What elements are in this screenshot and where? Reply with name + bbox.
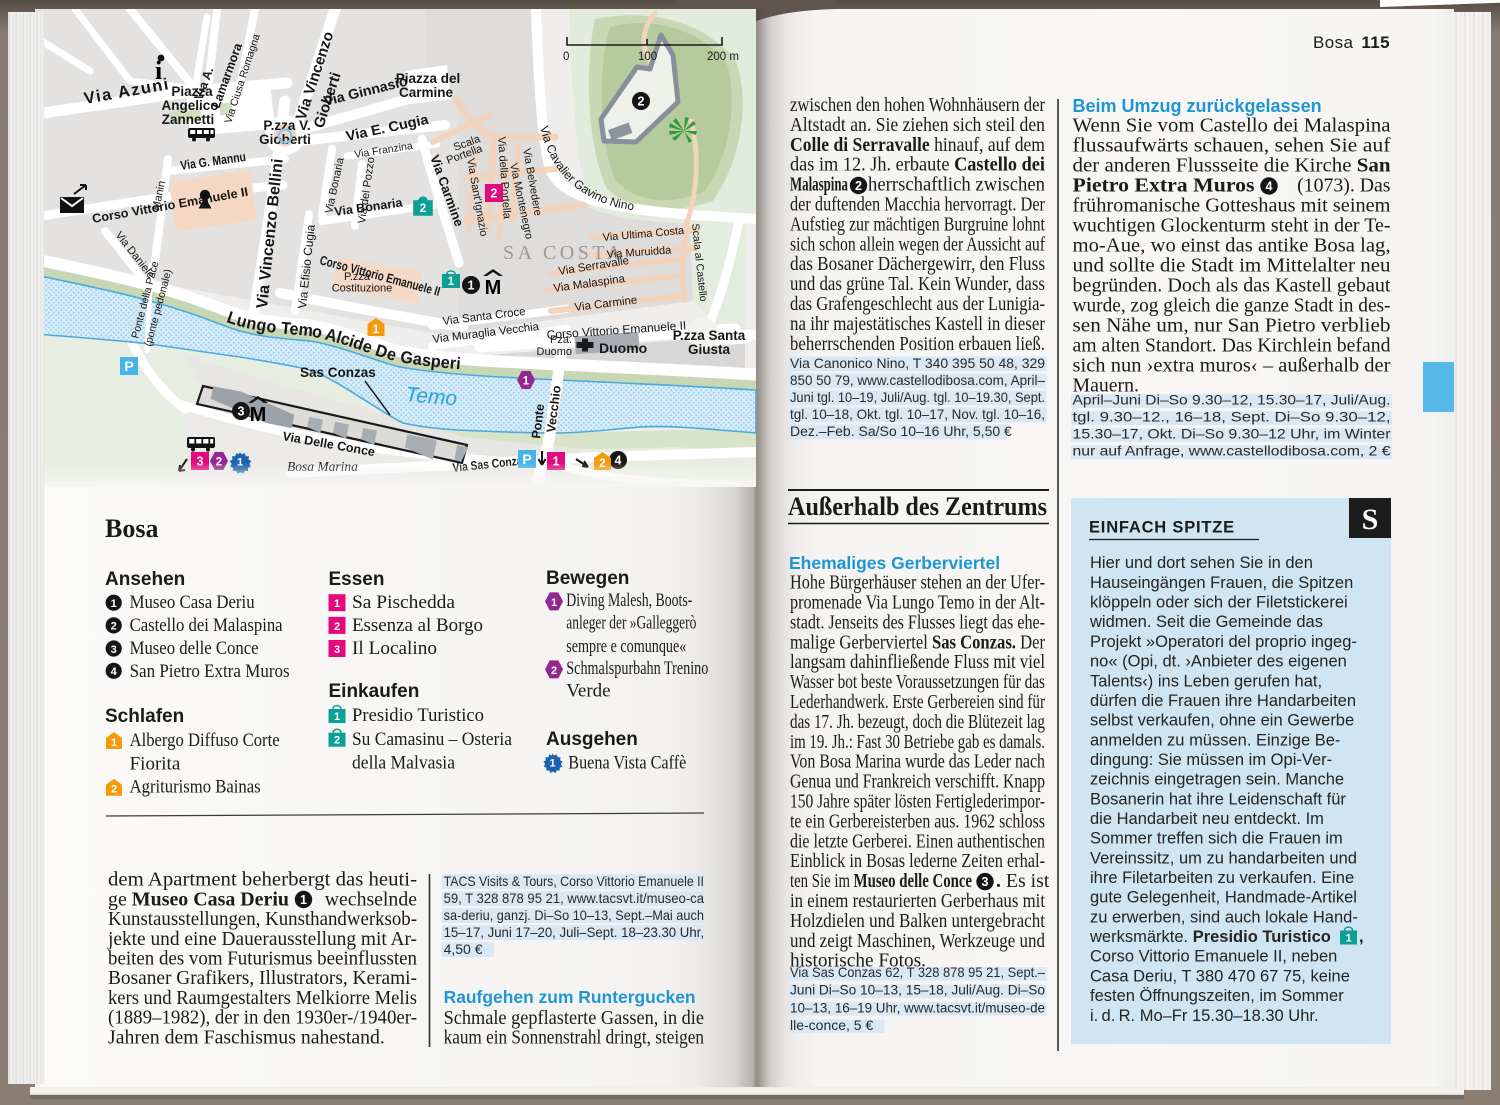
- svg-text:Vereinssitz, um zu handarbeite: Vereinssitz, um zu handarbeiten und: [1090, 849, 1357, 867]
- svg-text:Außerhalb des Zentrums: Außerhalb des Zentrums: [788, 491, 1047, 521]
- svg-text:1: 1: [1345, 933, 1351, 945]
- svg-text:dürfen die Frauen ihre Handarb: dürfen die Frauen ihre Handarbeiten: [1090, 692, 1356, 710]
- svg-text:Essen: Essen: [329, 569, 385, 590]
- svg-text:werksmärkte. Presidio Turistic: werksmärkte. Presidio Turistico: [1089, 928, 1331, 946]
- svg-text:ge Museo Casa Deriu: ge Museo Casa Deriu: [108, 888, 289, 910]
- svg-text:1: 1: [334, 598, 340, 610]
- svg-text:wurde, zog gleich die ganze St: wurde, zog gleich die ganze Stadt in des…: [1073, 295, 1391, 317]
- svg-text:flussaufwärts schauen, sehen S: flussaufwärts schauen, sehen Sie auf: [1073, 135, 1391, 157]
- svg-text:Aufstieg zur mächtigen Burgrui: Aufstieg zur mächtigen Burgruine lohnt: [790, 213, 1045, 235]
- svg-text:2: 2: [420, 203, 426, 215]
- svg-text:jekte und eine Dauerausstellun: jekte und eine Dauerausstellung mit Ar-: [107, 928, 417, 950]
- svg-text:3: 3: [238, 405, 245, 419]
- svg-text:2: 2: [855, 179, 862, 193]
- svg-text:Jahren dem Faschismus nahestan: Jahren dem Faschismus nahestand.: [108, 1026, 385, 1048]
- svg-text:1: 1: [373, 324, 380, 336]
- svg-text:ten Sie im Museo delle Conce: ten Sie im Museo delle Conce: [790, 870, 972, 892]
- svg-text:Dez.–Feb. Sa/So 10–16 Uhr, 5,5: Dez.–Feb. Sa/So 10–16 Uhr, 5,50 €: [790, 423, 1012, 439]
- svg-text:4,50 €: 4,50 €: [444, 941, 483, 957]
- svg-text:Bosa: Bosa: [105, 514, 158, 543]
- svg-text:TACS Visits & Tours, Corso Vit: TACS Visits & Tours, Corso Vittorio Eman…: [444, 873, 704, 889]
- svg-text:1: 1: [334, 711, 340, 723]
- svg-text:Wenn Sie vom Castello dei Mala: Wenn Sie vom Castello dei Malaspina: [1073, 115, 1391, 137]
- svg-text:Einkaufen: Einkaufen: [329, 681, 420, 702]
- svg-text:Essenza al Borgo: Essenza al Borgo: [352, 615, 483, 636]
- svg-text:3: 3: [982, 875, 989, 889]
- svg-text:beiten des vom Futurismus beei: beiten des vom Futurismus beeinflussten: [108, 948, 417, 970]
- svg-text:Museo Casa Deriu: Museo Casa Deriu: [130, 592, 255, 613]
- svg-text:1: 1: [448, 276, 455, 288]
- svg-text:ihre Filetarbeiten zu verkaufe: ihre Filetarbeiten zu verkaufen. Eine: [1090, 869, 1354, 887]
- svg-text:100: 100: [638, 51, 657, 63]
- svg-text:2: 2: [334, 621, 340, 633]
- svg-text:Piazza del: Piazza del: [396, 71, 461, 86]
- svg-text:die Handarbeit neu entdeckt. I: die Handarbeit neu entdeckt. Im: [1090, 810, 1324, 828]
- svg-text:Costituzione: Costituzione: [332, 283, 393, 295]
- svg-text:Bewegen: Bewegen: [546, 568, 629, 589]
- svg-text:Castello dei Malaspina: Castello dei Malaspina: [130, 615, 283, 636]
- svg-text:Juni Di–So 10–13, 15–18, Juli/: Juni Di–So 10–13, 15–18, Juli/Aug. Di–So: [790, 982, 1045, 998]
- svg-text:zu erwerben, sind auch lokale: zu erwerben, sind auch lokale Hand-: [1090, 908, 1358, 926]
- svg-text:Fiorita: Fiorita: [130, 754, 181, 775]
- svg-text:3: 3: [334, 644, 340, 656]
- svg-text:150 Jahre später lösten Fertig: 150 Jahre später lösten Fertiglederimpor…: [790, 791, 1045, 813]
- svg-text:P.zza Santa: P.zza Santa: [673, 328, 746, 343]
- svg-text:tgl. 10–18, Okt. tgl. 10–17, N: tgl. 10–18, Okt. tgl. 10–17, Nov. tgl. 1…: [790, 406, 1045, 422]
- svg-text:M: M: [485, 277, 502, 299]
- svg-text:im 19. Jh.: Fast 30 Betriebe g: im 19. Jh.: Fast 30 Betriebe gab es dama…: [790, 731, 1045, 753]
- svg-text:15–17, Juni 17–20, Juli–Sept.: 15–17, Juni 17–20, Juli–Sept. 18–23.30 U…: [444, 924, 704, 940]
- svg-text:Verde: Verde: [566, 681, 610, 702]
- svg-text:kers und Raumgestalters Melkio: kers und Raumgestalters Melkiorre Melis: [108, 987, 417, 1009]
- svg-text:Zannetti: Zannetti: [162, 112, 215, 127]
- svg-text:der anderen Flussseite die Kir: der anderen Flussseite die Kirche San: [1073, 155, 1391, 177]
- svg-text:Ehemaliges Gerberviertel: Ehemaliges Gerberviertel: [789, 553, 1000, 573]
- svg-text:festen Öffnungszeiten, im Somm: festen Öffnungszeiten, im Sommer: [1090, 987, 1344, 1005]
- svg-text:Carmine: Carmine: [399, 85, 454, 100]
- svg-text:Sommer treffen sich die Frauen: Sommer treffen sich die Frauen im: [1090, 830, 1343, 848]
- svg-text:Einblick in Bosas lederne Zeit: Einblick in Bosas lederne Zeiten erhal-: [790, 850, 1045, 872]
- svg-text:4: 4: [1266, 180, 1273, 194]
- svg-text:Casa Deriu, T 380 470 67 75, k: Casa Deriu, T 380 470 67 75, keine: [1090, 967, 1350, 985]
- svg-text:Colle di Serravalle hinauf, au: Colle di Serravalle hinauf, auf dem: [790, 134, 1046, 156]
- svg-text:Diving Malesh, Boots-: Diving Malesh, Boots-: [566, 590, 692, 611]
- svg-text:Gioberti: Gioberti: [259, 132, 311, 147]
- svg-text:Su Camasinu – Osteria: Su Camasinu – Osteria: [352, 729, 513, 750]
- svg-text:sa-deriu, ganzj. Di–So 10–13,: sa-deriu, ganzj. Di–So 10–13, Sept.–Mai …: [444, 907, 704, 923]
- svg-text:selbst verkaufen, ohne ein Gew: selbst verkaufen, ohne ein Gewerbe: [1090, 712, 1354, 730]
- svg-text:stadt. Jenseits des Flusses li: stadt. Jenseits des Flusses liegt das eh…: [790, 611, 1045, 633]
- svg-text:della Malvasia: della Malvasia: [352, 753, 456, 774]
- svg-text:Il Localino: Il Localino: [352, 638, 437, 659]
- svg-text:P: P: [124, 358, 133, 374]
- svg-text:Bosa115: Bosa115: [1313, 33, 1390, 52]
- svg-text:Via Canonico Nino, T 340 395 5: Via Canonico Nino, T 340 395 50 48, 329: [790, 355, 1045, 371]
- svg-text:Via Sas Conzas 62, T 328 878 9: Via Sas Conzas 62, T 328 878 95 21, Sept…: [790, 964, 1045, 980]
- svg-text:Raufgehen zum Runtergucken: Raufgehen zum Runtergucken: [444, 987, 696, 1007]
- svg-text:59, T 328 878 95 21, www.tacsv: 59, T 328 878 95 21, www.tacsvt.it/museo…: [444, 890, 705, 906]
- svg-text:Bosaner Grafikers, Illustrator: Bosaner Grafikers, Illustrators, Kerami-: [108, 967, 417, 989]
- svg-text:1: 1: [523, 376, 530, 388]
- svg-text:und das grüne Tal. Kein Wunder: und das grüne Tal. Kein Wunder, dass: [790, 273, 1045, 295]
- svg-text:(1073). Das: (1073). Das: [1297, 175, 1390, 197]
- svg-text:200 m: 200 m: [707, 51, 739, 63]
- svg-text:,: ,: [1359, 928, 1364, 946]
- svg-text:no« (Opi, dt. ›Anbieter des ei: no« (Opi, dt. ›Anbieter des eigenen: [1090, 653, 1347, 671]
- svg-text:Hauseingängen Frauen, die Spit: Hauseingängen Frauen, die Spitzen: [1090, 574, 1353, 592]
- svg-text:1: 1: [468, 279, 475, 293]
- svg-text:1: 1: [300, 893, 307, 907]
- svg-text:das 17. Jh. bezeugt, doch die: das 17. Jh. bezeugt, doch die Blütezeit …: [790, 711, 1045, 733]
- svg-text:Bosanerin hat ihre Leidenschaf: Bosanerin hat ihre Leidenschaft für: [1090, 790, 1346, 808]
- svg-text:Pza.: Pza.: [550, 334, 572, 346]
- svg-text:dingung: Sie müssen im Opi-Ver: dingung: Sie müssen im Opi-Ver-: [1090, 751, 1332, 769]
- svg-text:2: 2: [334, 735, 340, 747]
- svg-text:wuchtigen Glockenturm steht in: wuchtigen Glockenturm steht in der Te-: [1073, 215, 1391, 237]
- svg-text:2: 2: [491, 187, 498, 201]
- svg-text:Giusta: Giusta: [688, 342, 731, 357]
- svg-text:Ausgehen: Ausgehen: [546, 729, 638, 750]
- svg-text:Malaspina: Malaspina: [790, 174, 848, 196]
- svg-text:Duomo: Duomo: [599, 340, 647, 356]
- svg-text:sempre e comunque«: sempre e comunque«: [566, 636, 686, 657]
- svg-text:1: 1: [111, 737, 117, 749]
- svg-text:herrschaftlich zwischen: herrschaftlich zwischen: [868, 174, 1045, 196]
- svg-text:frühromanische Gotteshaus mit: frühromanische Gotteshaus mit seinem: [1073, 195, 1392, 217]
- svg-text:Juni tgl. 10–19, Juli/Aug. tgl: Juni tgl. 10–19, Juli/Aug. tgl. 10–19.30…: [790, 389, 1045, 405]
- svg-text:sich nun ›extra muros‹ – außer: sich nun ›extra muros‹ – außerhalb der: [1073, 355, 1391, 377]
- svg-text:Kunstausstellungen, Kunsthandw: Kunstausstellungen, Kunsthandwerksob-: [108, 908, 417, 930]
- svg-text:zwischen den hohen Wohnhäusern: zwischen den hohen Wohnhäusern der: [790, 94, 1045, 116]
- svg-text:4: 4: [111, 666, 118, 678]
- svg-text:S: S: [1362, 503, 1379, 536]
- svg-text:in einem restaurierten Gerberh: in einem restaurierten Gerberhaus mit: [790, 890, 1045, 912]
- svg-text:P.zza: P.zza: [344, 271, 371, 283]
- svg-text:promenade Via Lungo Temo in de: promenade Via Lungo Temo in der Alt-: [790, 592, 1045, 614]
- svg-text:Presidio Turistico: Presidio Turistico: [352, 705, 484, 726]
- svg-text:2: 2: [111, 621, 117, 633]
- svg-text:das im 12. Jh. erbaute Castell: das im 12. Jh. erbaute Castello dei: [790, 154, 1045, 176]
- svg-text:Albergo Diffuso Corte: Albergo Diffuso Corte: [130, 730, 280, 751]
- svg-text:malige Gerberviertel Sas Conza: malige Gerberviertel Sas Conzas. Der: [790, 631, 1045, 653]
- svg-text:(1889–1982), der in den 1930er: (1889–1982), der in den 1930er-/1940er-: [108, 1007, 417, 1029]
- svg-text:EINFACH SPITZE: EINFACH SPITZE: [1089, 519, 1235, 537]
- svg-text:das Grafengeschlecht aus der L: das Grafengeschlecht aus der Lunigia-: [790, 293, 1045, 315]
- svg-text:begründen. Doch als das Kastel: begründen. Doch als das Kastell gebaut: [1073, 275, 1391, 297]
- svg-text:dem Apartment beherbergt das h: dem Apartment beherbergt das heuti-: [108, 869, 417, 891]
- svg-text:Altstadt an. Sie ziehen sich s: Altstadt an. Sie ziehen sich steil den: [790, 114, 1045, 136]
- svg-text:Buena Vista Caffè: Buena Vista Caffè: [568, 753, 686, 774]
- svg-text:wechselnde: wechselnde: [325, 888, 417, 910]
- svg-text:2: 2: [638, 95, 645, 109]
- svg-text:mo-Aue, wo einst das antike Bo: mo-Aue, wo einst das antike Bosa lag,: [1073, 235, 1391, 257]
- svg-text:kaum ein Sonnenstrahl dringt,: kaum ein Sonnenstrahl dringt, steigen: [444, 1027, 704, 1049]
- svg-text:sich schon allein wegen der Au: sich schon allein wegen der Aussicht auf: [790, 233, 1045, 255]
- svg-text:und sollte die Stadt im Mittel: und sollte die Stadt im Mittelalter neu: [1073, 255, 1391, 277]
- svg-text:Von Bosa Marina wurde das Lede: Von Bosa Marina wurde das Leder nach: [790, 751, 1045, 773]
- svg-text:Ansehen: Ansehen: [105, 569, 185, 590]
- svg-text:nur auf Anfrage, www.castellod: nur auf Anfrage, www.castellodibosa.com,…: [1073, 443, 1391, 459]
- svg-text:Holzdielen und Balken untergeb: Holzdielen und Balken untergebracht: [790, 910, 1045, 932]
- svg-text:Wasser bot beste Voraussetzung: Wasser bot beste Voraussetzungen für das: [790, 671, 1045, 693]
- svg-text:lle-conce, 5 €: lle-conce, 5 €: [790, 1017, 873, 1033]
- svg-text:April–Juni Di–So 9.30–12, 15.3: April–Juni Di–So 9.30–12, 15.30–17, Juli…: [1073, 392, 1391, 408]
- svg-text:am alten Standort. Das Kirchle: am alten Standort. Das Kirchlein befand: [1073, 335, 1391, 357]
- svg-text:Genua und Frankreich verschiff: Genua und Frankreich verschifft. Knapp: [790, 771, 1045, 793]
- svg-text:850 50 79, www.castellodibosa.: 850 50 79, www.castellodibosa.com, April…: [790, 372, 1045, 388]
- svg-text:San Pietro Extra Muros: San Pietro Extra Muros: [130, 661, 290, 682]
- svg-text:zeichnis eingetragen sein. Man: zeichnis eingetragen sein. Manche: [1090, 771, 1344, 789]
- svg-text:sen Nähe um, nur San Pietro ve: sen Nähe um, nur San Pietro verblieb: [1073, 315, 1391, 337]
- svg-text:te ein Gerbereisterben aus. 19: te ein Gerbereisterben aus. 1962 schloss: [790, 810, 1045, 832]
- svg-text:1: 1: [549, 757, 555, 769]
- svg-text:Museo delle Conce: Museo delle Conce: [130, 638, 259, 659]
- svg-text:2: 2: [111, 784, 117, 796]
- svg-text:beherrschenden Position erbaue: beherrschenden Position erbauen ließ.: [790, 333, 1045, 355]
- svg-text:Duomo: Duomo: [537, 346, 572, 358]
- svg-text:Temo: Temo: [405, 383, 459, 410]
- svg-text:widmen. Seit die Gemeinde das: widmen. Seit die Gemeinde das: [1089, 613, 1323, 631]
- svg-text:die letzte Gerberei. Einen aut: die letzte Gerberei. Einen authentischen: [790, 830, 1045, 852]
- svg-text:. Es ist: . Es ist: [996, 870, 1050, 892]
- svg-text:M: M: [250, 404, 267, 426]
- svg-text:Talents‹) ins Leben gerufen ha: Talents‹) ins Leben gerufen hat,: [1090, 672, 1322, 690]
- svg-text:Corso Vittorio Emanuele II, ne: Corso Vittorio Emanuele II, neben: [1090, 948, 1337, 966]
- svg-text:0: 0: [563, 51, 569, 63]
- svg-text:Sas Conzas: Sas Conzas: [300, 365, 376, 380]
- svg-text:1: 1: [111, 598, 117, 610]
- svg-text:Projekt »Operatori del proprio: Projekt »Operatori del proprio ingeg-: [1090, 633, 1357, 651]
- svg-text:2: 2: [551, 665, 557, 677]
- svg-text:und zeigt Maschinen, Werkzeuge: und zeigt Maschinen, Werkzeuge und: [790, 930, 1045, 952]
- svg-text:Agriturismo Bainas: Agriturismo Bainas: [130, 777, 261, 798]
- svg-text:gute Gelegenheit, Handmade-Art: gute Gelegenheit, Handmade-Artikel: [1090, 889, 1357, 907]
- svg-text:Beim Umzug zurückgelassen: Beim Umzug zurückgelassen: [1073, 96, 1322, 116]
- svg-text:na ihr majestätisches Kastell: na ihr majestätisches Kastell in dieser: [790, 313, 1045, 335]
- svg-text:Lederhandwerk. Erste Gerbereie: Lederhandwerk. Erste Gerbereien sind für: [790, 691, 1045, 713]
- svg-text:das Bosaner Dächergewirr, den: das Bosaner Dächergewirr, den Fluss: [790, 253, 1045, 275]
- svg-text:Sa Pischedda: Sa Pischedda: [352, 592, 456, 613]
- svg-text:3: 3: [111, 644, 117, 656]
- svg-text:Hohe Bürgerhäuser stehen an de: Hohe Bürgerhäuser stehen an der Ufer-: [790, 572, 1045, 594]
- svg-text:15.30–17, Okt. Di–So 9.30–12 U: 15.30–17, Okt. Di–So 9.30–12 Uhr, im Win…: [1073, 426, 1391, 442]
- svg-text:i. d. R. Mo–Fr 15.30–18.30 Uhr: i. d. R. Mo–Fr 15.30–18.30 Uhr.: [1090, 1007, 1319, 1025]
- svg-text:Schlafen: Schlafen: [105, 706, 184, 727]
- svg-text:Pietro Extra Muros: Pietro Extra Muros: [1073, 175, 1255, 197]
- svg-text:der duftenden Macchia hervorra: der duftenden Macchia hervorragt. Der: [790, 194, 1045, 216]
- svg-text:Schmalspurbahn Trenino: Schmalspurbahn Trenino: [566, 658, 708, 679]
- svg-text:klöppeln oder sich der Filetst: klöppeln oder sich der Filetstickerei: [1090, 594, 1348, 612]
- svg-text:anleger der »Galleggerò: anleger der »Galleggerò: [566, 613, 696, 634]
- svg-text:langsam dahinfließende Fluss m: langsam dahinfließende Fluss mit viel: [790, 651, 1045, 673]
- svg-text:10–13, 16–19 Uhr, www.tacsvt.i: 10–13, 16–19 Uhr, www.tacsvt.it/museo-de: [790, 999, 1045, 1015]
- svg-text:tgl. 9.30–12., 16–18, Sept. Di: tgl. 9.30–12., 16–18, Sept. Di–So 9.30–1…: [1073, 409, 1391, 425]
- svg-text:1: 1: [551, 597, 557, 609]
- svg-text:anmelden zu müssen. Einzige Be: anmelden zu müssen. Einzige Be-: [1090, 731, 1340, 749]
- svg-text:Hier und dort sehen Sie in den: Hier und dort sehen Sie in den: [1090, 554, 1313, 572]
